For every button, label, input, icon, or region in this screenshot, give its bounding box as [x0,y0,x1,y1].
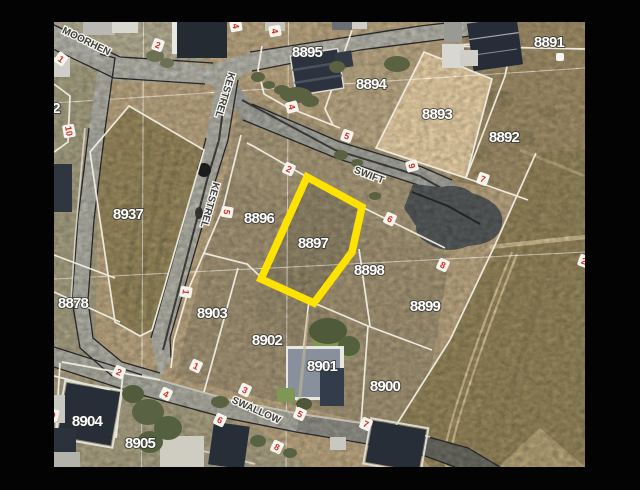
svg-text:8891: 8891 [534,34,565,51]
svg-text:8894: 8894 [356,76,388,93]
svg-text:8893: 8893 [422,106,453,123]
svg-text:8901: 8901 [307,358,338,375]
svg-text:8900: 8900 [370,378,401,395]
svg-text:8903: 8903 [197,305,228,322]
svg-text:8896: 8896 [244,210,275,227]
svg-text:8897: 8897 [298,235,329,252]
svg-text:8902: 8902 [252,332,283,349]
svg-text:8878: 8878 [58,295,89,312]
svg-text:8892: 8892 [489,129,520,146]
svg-text:8905: 8905 [125,435,156,452]
svg-text:8904: 8904 [72,413,104,430]
svg-text:8937: 8937 [113,206,144,223]
svg-text:10: 10 [63,125,75,137]
svg-text:8899: 8899 [410,298,441,315]
svg-text:8898: 8898 [354,262,385,279]
svg-text:8895: 8895 [292,44,323,61]
